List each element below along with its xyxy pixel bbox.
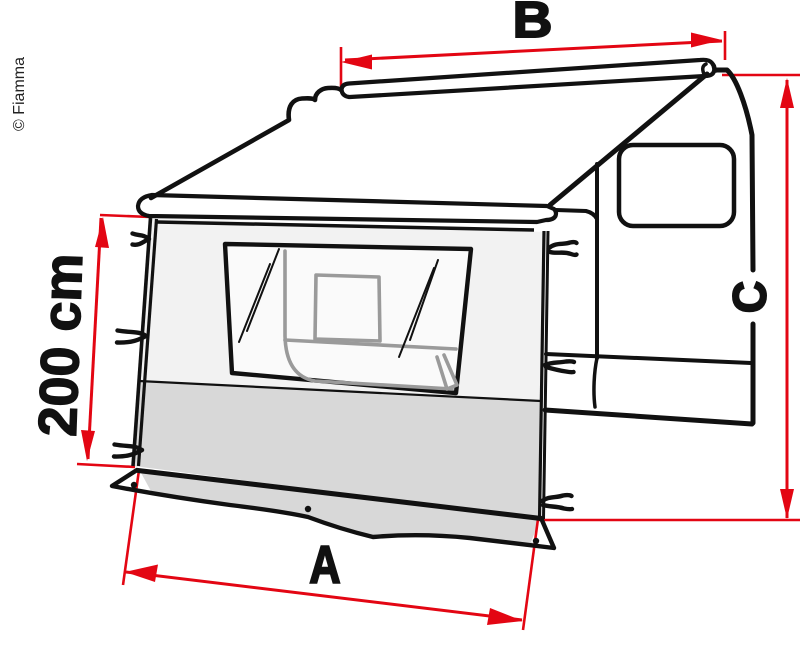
svg-text:B: B [513, 0, 553, 49]
svg-text:C: C [724, 281, 776, 313]
svg-text:© Fiamma: © Fiamma [11, 57, 28, 131]
svg-text:A: A [309, 536, 340, 595]
svg-text:200 cm: 200 cm [28, 252, 94, 437]
